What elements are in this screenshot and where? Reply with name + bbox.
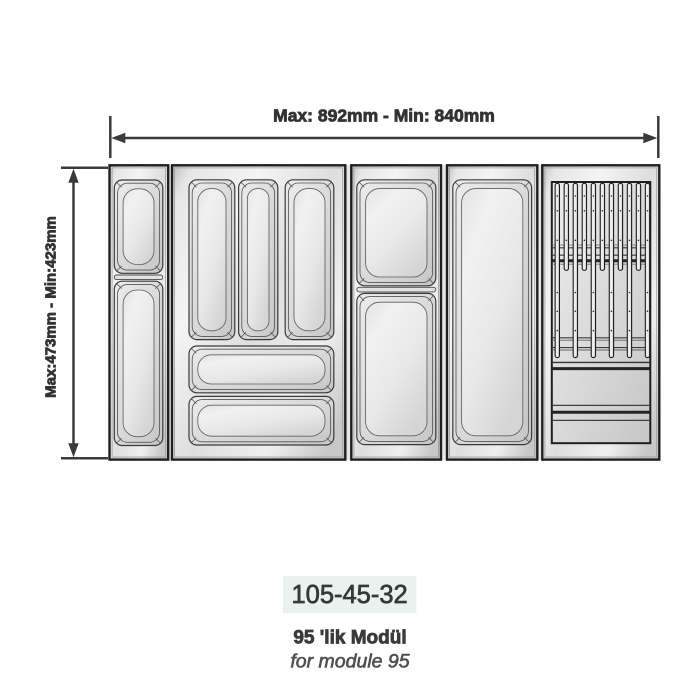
svg-text:Max: 892mm - Min: 840mm: Max: 892mm - Min: 840mm bbox=[273, 106, 495, 126]
svg-text:105-45-32: 105-45-32 bbox=[291, 581, 407, 609]
svg-text:95 'lik Modül: 95 'lik Modül bbox=[293, 628, 406, 649]
svg-text:for module 95: for module 95 bbox=[290, 651, 409, 673]
svg-text:Max:473mm - Min:423mm: Max:473mm - Min:423mm bbox=[43, 216, 60, 398]
